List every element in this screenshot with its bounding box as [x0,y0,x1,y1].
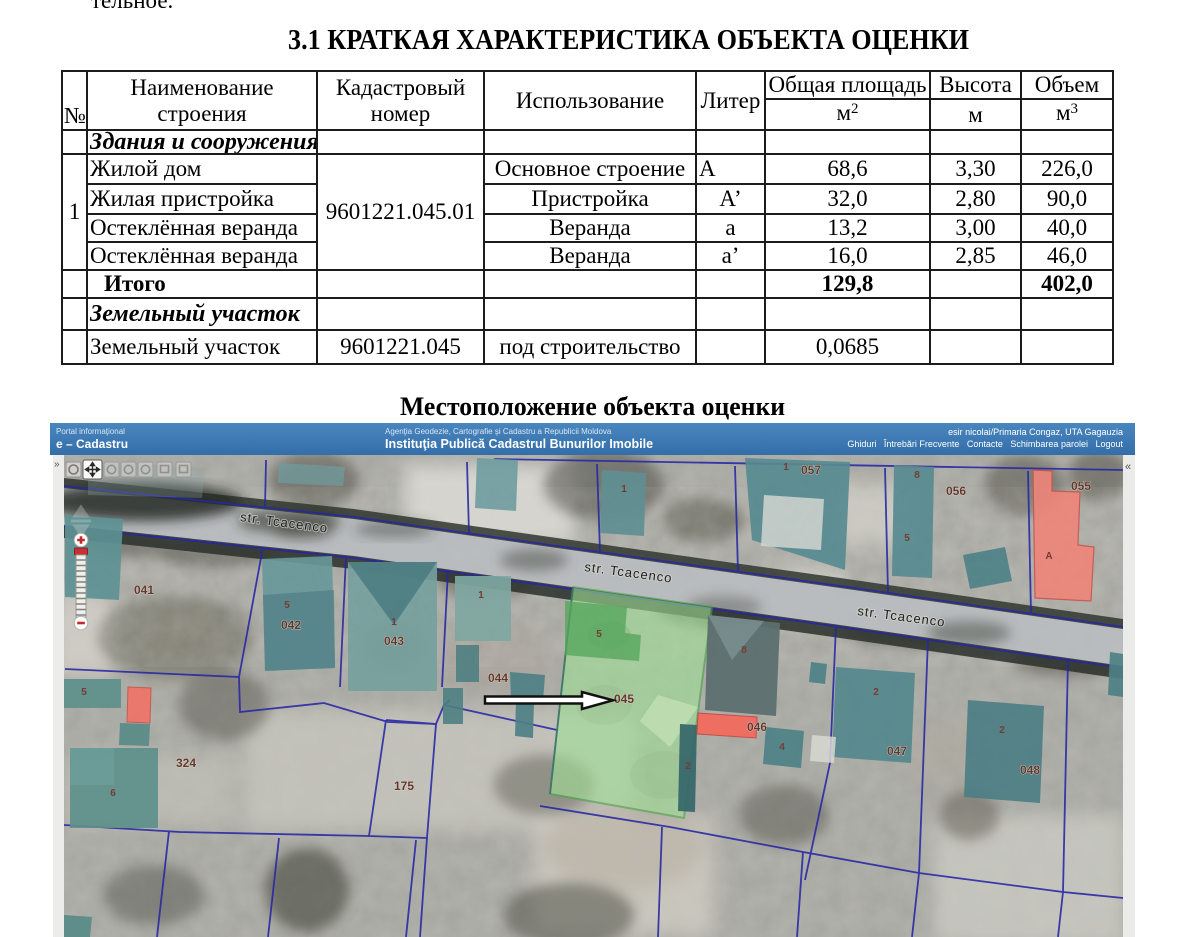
svg-text:324: 324 [176,756,196,770]
svg-text:175: 175 [394,779,414,793]
svg-text:1: 1 [478,590,484,601]
svg-text:1: 1 [391,617,397,628]
svg-text:5: 5 [81,687,87,698]
svg-text:4: 4 [779,742,785,753]
svg-text:043: 043 [384,634,404,648]
svg-text:5: 5 [284,600,290,611]
svg-text:045: 045 [614,692,634,706]
svg-text:047: 047 [887,744,907,758]
svg-text:041: 041 [134,583,154,597]
svg-text:046: 046 [747,720,767,734]
svg-text:2: 2 [999,725,1005,736]
svg-text:048: 048 [1020,763,1040,777]
svg-text:5: 5 [596,629,602,640]
svg-text:5: 5 [904,533,910,544]
svg-text:055: 055 [1071,479,1091,493]
svg-text:057: 057 [801,463,821,477]
svg-text:044: 044 [488,671,508,685]
svg-text:042: 042 [281,618,301,632]
svg-text:8: 8 [914,470,920,481]
svg-text:A: A [1045,551,1052,562]
svg-text:2: 2 [685,761,691,772]
svg-text:056: 056 [946,484,966,498]
svg-text:2: 2 [873,687,879,698]
svg-text:1: 1 [783,462,789,473]
svg-text:1: 1 [621,484,627,495]
svg-text:6: 6 [110,788,116,799]
svg-text:8: 8 [741,645,747,656]
